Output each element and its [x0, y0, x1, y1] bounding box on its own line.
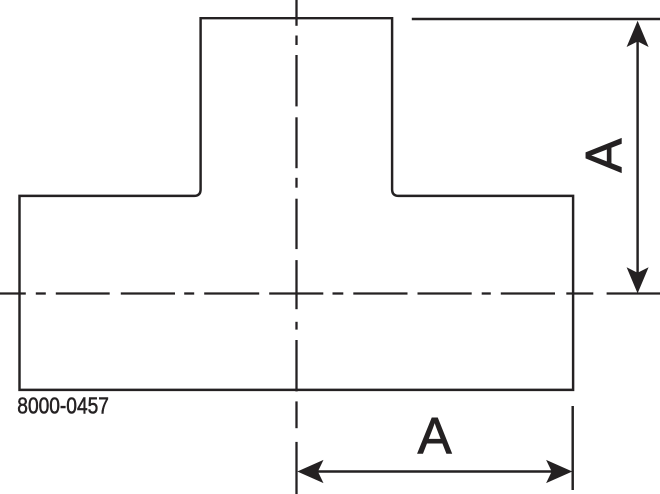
svg-text:8000-0457: 8000-0457	[17, 394, 109, 419]
svg-text:A: A	[575, 138, 632, 172]
svg-text:A: A	[418, 408, 452, 465]
